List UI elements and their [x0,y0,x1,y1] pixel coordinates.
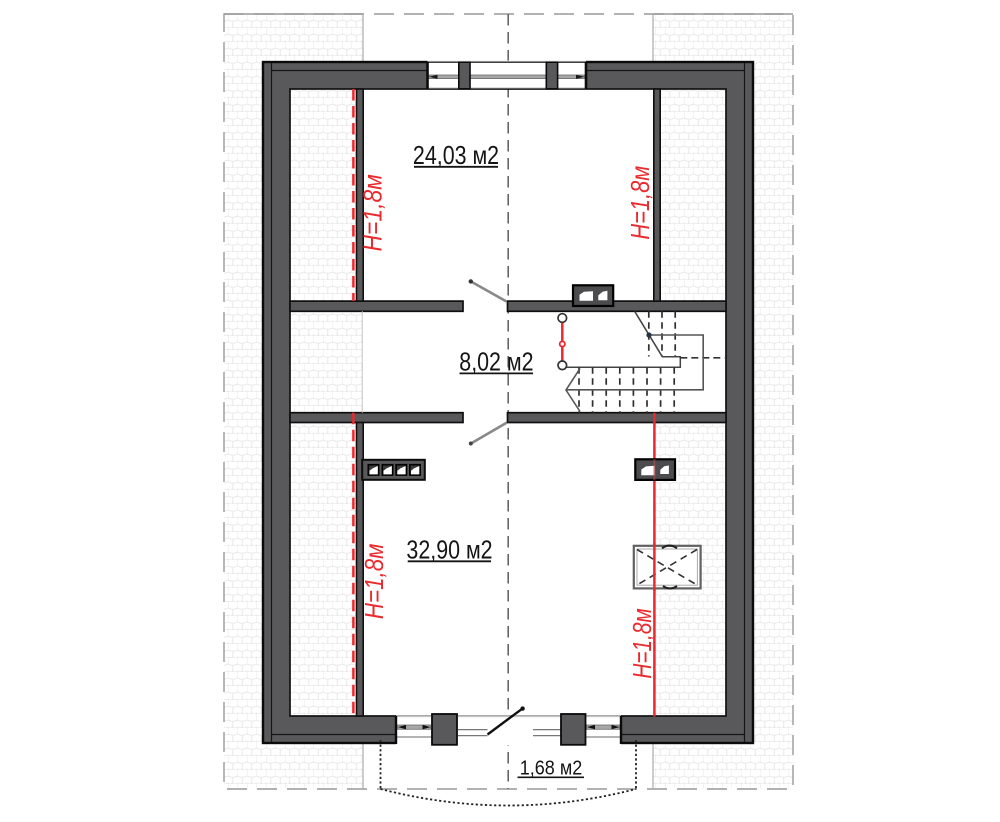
svg-text:H=1,8м: H=1,8м [359,174,388,252]
svg-text:32,90 м2: 32,90 м2 [406,536,492,564]
svg-text:H=1,8м: H=1,8м [626,166,655,240]
svg-text:1,68 м2: 1,68 м2 [520,757,583,779]
svg-text:8,02 м2: 8,02 м2 [459,348,533,376]
svg-text:H=1,8м: H=1,8м [628,608,657,678]
svg-text:24,03 м2: 24,03 м2 [413,141,499,169]
svg-text:H=1,8м: H=1,8м [361,543,390,619]
